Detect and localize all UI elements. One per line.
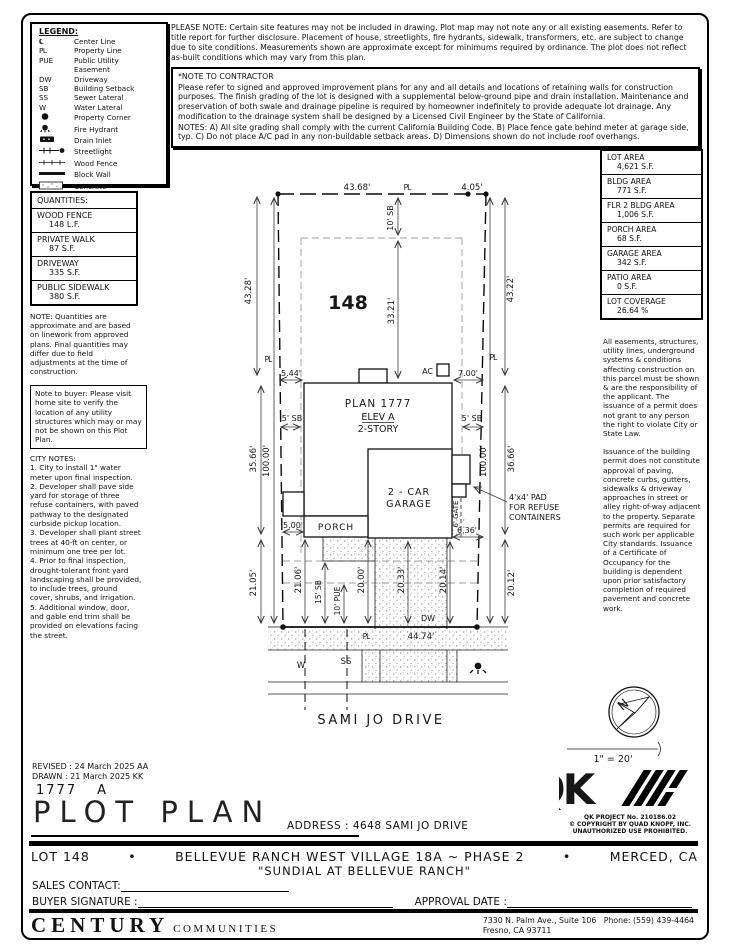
- qty-name: PUBLIC SIDEWALK: [37, 283, 131, 292]
- plan-stories: 2-STORY: [358, 424, 399, 435]
- buyer-signature-label: BUYER SIGNATURE :: [32, 896, 138, 908]
- city-notes: CITY NOTES: 1. City to install 1" water …: [30, 454, 142, 640]
- property-line-abbr: PL: [32, 46, 74, 55]
- dim-top-right: 4.05': [461, 183, 482, 193]
- dim-sb-right: 5' SB: [462, 414, 482, 423]
- fire-hydrant-icon: [32, 124, 74, 135]
- city-note-item: 2. Developer shall pave side yard for st…: [30, 482, 142, 528]
- water-abbr: W: [32, 103, 74, 112]
- house-side-bump: [283, 492, 304, 516]
- builder-footer: CENTURYCOMMUNITIES 7330 N. Palm Ave., Su…: [31, 913, 698, 938]
- legend-label: Fire Hydrant: [74, 125, 166, 134]
- dim-pad-width: 6.36': [457, 526, 477, 535]
- legend-label: Sewer Lateral: [74, 93, 166, 102]
- driveway-abbr: DW: [32, 75, 74, 84]
- city-note-item: 5. Additional window, door, and gable en…: [30, 603, 142, 640]
- city-note-item: 3. Developer shall plant street trees at…: [30, 528, 142, 556]
- pue-abbr: PUE: [32, 56, 74, 65]
- subdivision-name: "SUNDIAL AT BELLEVUE RANCH": [31, 864, 698, 878]
- dim-top-width: 43.68': [344, 183, 371, 193]
- legend-label: Water Lateral: [74, 103, 166, 112]
- water-label: W: [297, 661, 306, 671]
- legend-label: Streetlight: [74, 147, 166, 156]
- house-rear-bump: [359, 369, 387, 383]
- dim-right-gap: 7.00': [458, 369, 478, 378]
- quantities-title: QUANTITIES:: [32, 193, 136, 209]
- north-label: N: [615, 696, 632, 714]
- builder-city: Fresno, CA 93711: [483, 926, 694, 936]
- separator-band-1: [29, 841, 698, 846]
- plot-drawing-svg: 43.68' PL 4.05' 43.28' 43.22' 10' SB 33.…: [230, 160, 710, 780]
- legend-label: Property Corner: [74, 113, 166, 122]
- qk-project-number: QK PROJECT No. 210186.02: [556, 814, 704, 821]
- pl-label-top: PL: [404, 183, 413, 192]
- signature-row: BUYER SIGNATURE : APPROVAL DATE :: [32, 895, 698, 908]
- plot-plan-page: LEGEND: ℄Center Line PLProperty Line PUE…: [0, 0, 729, 947]
- dim-front-6: 20.12': [507, 570, 517, 597]
- streetlight-icon: [32, 146, 74, 157]
- dim-porch-step: 5.00': [283, 521, 303, 530]
- community-name: BELLEVUE RANCH WEST VILLAGE 18A ~ PHASE …: [175, 849, 524, 864]
- bullet-2: •: [563, 849, 571, 864]
- pad-note-1: 4'x4' PAD: [509, 493, 547, 502]
- approval-date-line: [507, 895, 692, 908]
- pad-note-3: CONTAINERS: [509, 513, 561, 522]
- qty-value: 380 S.F.: [37, 292, 131, 301]
- svg-text:QK: QK: [559, 768, 597, 810]
- fire-hydrant-symbol: [470, 663, 486, 674]
- sheet-title: PLOT PLAN: [33, 795, 272, 829]
- driveway-approach-hatch: [362, 650, 457, 682]
- contractor-notes: NOTES: A) All site grading shall comply …: [178, 123, 693, 142]
- revision-block: REVISED : 24 March 2025 AA DRAWN : 21 Ma…: [32, 762, 148, 782]
- qty-value: 148 L.F.: [37, 220, 131, 229]
- qty-name: WOOD FENCE: [37, 211, 131, 220]
- quantities-row: PRIVATE WALK87 S.F.: [32, 233, 136, 257]
- legend-label: Wood Fence: [74, 159, 166, 168]
- buyer-signature-line: [138, 895, 393, 908]
- address-line: ADDRESS : 4648 SAMI JO DRIVE: [287, 820, 468, 832]
- ac-pad: [437, 364, 449, 376]
- legend-label: Block Wall: [74, 170, 166, 179]
- quantities-note: NOTE: Quantities are approximate and are…: [30, 312, 140, 376]
- dim-front-pue: 10' PUE: [333, 586, 342, 615]
- dim-frontage: 44.74': [408, 632, 435, 642]
- gate-label: 6' GATE: [452, 501, 460, 528]
- property-corner-icon: [32, 112, 74, 123]
- legend-label: Building Setback: [74, 84, 166, 93]
- dim-front-5: 20.14': [439, 567, 449, 594]
- legend-label: Public Utility: [74, 56, 166, 65]
- city-name: MERCED, CA: [610, 849, 698, 864]
- dim-rear-setback: 10' SB: [386, 205, 395, 231]
- porch-label: PORCH: [318, 523, 354, 533]
- qty-value: 335 S.F.: [37, 268, 131, 277]
- lot-title-row: LOT 148 • BELLEVUE RANCH WEST VILLAGE 18…: [31, 849, 698, 864]
- city-note-item: 4. Prior to final inspection, drought-to…: [30, 556, 142, 602]
- sewer-abbr: SS: [32, 93, 74, 102]
- dim-left-mid: 35.66': [249, 446, 259, 473]
- quantities-row: WOOD FENCE148 L.F.: [32, 209, 136, 233]
- private-walk-hatch: [323, 537, 375, 561]
- sales-contact-line: [121, 879, 289, 892]
- block-wall-icon: [32, 169, 74, 180]
- centerline-icon: ℄: [32, 37, 74, 46]
- dim-front-3: 20.00': [357, 567, 367, 594]
- drain-inlet-icon: [32, 135, 74, 146]
- please-note-text: PLEASE NOTE: Certain site features may n…: [171, 23, 695, 63]
- builder-phone: Phone: (559) 439-4464: [604, 916, 694, 925]
- dim-front-2: 21.06': [294, 567, 304, 594]
- city-note-item: 1. City to install 1" water meter upon f…: [30, 463, 142, 482]
- driveway-label: DW: [421, 614, 435, 623]
- wood-fence-icon: [32, 158, 74, 169]
- buyer-note-box: Note to buyer: Please visit home site to…: [30, 385, 147, 449]
- quantities-table: QUANTITIES: WOOD FENCE148 L.F. PRIVATE W…: [30, 191, 138, 306]
- bullet-1: •: [128, 849, 136, 864]
- quantities-row: PUBLIC SIDEWALK380 S.F.: [32, 281, 136, 304]
- qty-value: 87 S.F.: [37, 244, 131, 253]
- note-to-contractor-box: *NOTE TO CONTRACTOR Please refer to sign…: [171, 67, 700, 148]
- builder-name: CENTURY: [31, 913, 169, 937]
- qty-name: PRIVATE WALK: [37, 235, 131, 244]
- garage-label-2: GARAGE: [386, 499, 432, 510]
- north-arrow: N: [609, 687, 659, 737]
- ac-label: AC: [422, 367, 433, 376]
- builder-subname: COMMUNITIES: [173, 923, 278, 935]
- qk-copyright: © COPYRIGHT BY QUAD KNOPF, INC.: [556, 821, 704, 828]
- plan-name: PLAN 1777: [345, 398, 412, 410]
- qk-logo-block: QK QK PROJECT No. 210186.02 © COPYRIGHT …: [556, 768, 704, 835]
- quantities-row: DRIVEWAY335 S.F.: [32, 257, 136, 281]
- builder-logo: CENTURYCOMMUNITIES: [31, 913, 278, 938]
- street-name: SAMI JO DRIVE: [317, 713, 444, 728]
- refuse-pad: [452, 455, 470, 484]
- legend-label: Center Line: [74, 37, 166, 46]
- pad-note-2: FOR REFUSE: [509, 503, 559, 512]
- garage-label-1: 2 - CAR: [388, 487, 430, 498]
- sales-contact-row: SALES CONTACT:: [32, 879, 289, 892]
- qty-name: DRIVEWAY: [37, 259, 131, 268]
- dim-front-setback: 15' SB: [314, 580, 323, 604]
- contractor-body: Please refer to signed and approved impr…: [178, 83, 693, 122]
- dim-rear-to-house: 33.21': [387, 298, 397, 325]
- legend-label: Easement: [74, 65, 166, 74]
- qk-logo: QK: [559, 768, 701, 810]
- dim-right-depth: 100.00': [479, 445, 489, 477]
- dim-left-outer: 43.28': [244, 278, 254, 305]
- plan-elevation: ELEV A: [361, 412, 395, 423]
- approval-date-label: APPROVAL DATE :: [415, 896, 507, 908]
- left-property-line: [278, 194, 283, 627]
- scale-label: 1" = 20': [593, 754, 632, 765]
- dim-front-4: 20.33': [397, 567, 407, 594]
- contractor-title: *NOTE TO CONTRACTOR: [178, 72, 693, 82]
- builder-street: 7330 N. Palm Ave., Suite 106: [483, 916, 596, 925]
- city-notes-title: CITY NOTES:: [30, 454, 142, 463]
- builder-address-block: 7330 N. Palm Ave., Suite 106 Phone: (559…: [483, 916, 698, 935]
- lot-number: 148: [328, 292, 368, 314]
- lot-label: LOT 148: [31, 849, 90, 864]
- dim-right-mid: 36.66': [507, 446, 517, 473]
- sewer-label: SS: [341, 657, 352, 667]
- legend-label: Driveway: [74, 75, 166, 84]
- setback-abbr: SB: [32, 84, 74, 93]
- pl-label-left: PL: [265, 355, 274, 364]
- dim-left-gap: 5.44': [281, 369, 301, 378]
- legend-label: Drain Inlet: [74, 136, 166, 145]
- qk-unauthorized: UNAUTHORIZED USE PROHIBITED.: [556, 828, 704, 835]
- dim-sb-left: 5' SB: [282, 414, 302, 423]
- dim-front-1: 21.05': [249, 570, 259, 597]
- legend-label: Concrete: [74, 182, 166, 191]
- dim-left-depth: 100.00': [262, 445, 272, 477]
- right-property-line: [477, 194, 486, 627]
- sales-contact-label: SALES CONTACT:: [32, 880, 121, 892]
- pl-label-right: PL: [490, 353, 499, 362]
- revised-line: REVISED : 24 March 2025 AA: [32, 762, 148, 772]
- driveway-hatch: [375, 538, 447, 629]
- refuse-pad-step: [452, 484, 466, 497]
- public-sidewalk-hatch: [268, 629, 508, 650]
- dim-right-outer: 43.22': [506, 276, 516, 303]
- legend-panel: LEGEND: ℄Center Line PLProperty Line PUE…: [30, 22, 168, 186]
- legend-label: Property Line: [74, 46, 166, 55]
- legend-title: LEGEND:: [39, 27, 166, 36]
- drawn-line: DRAWN : 21 March 2025 KK: [32, 772, 148, 782]
